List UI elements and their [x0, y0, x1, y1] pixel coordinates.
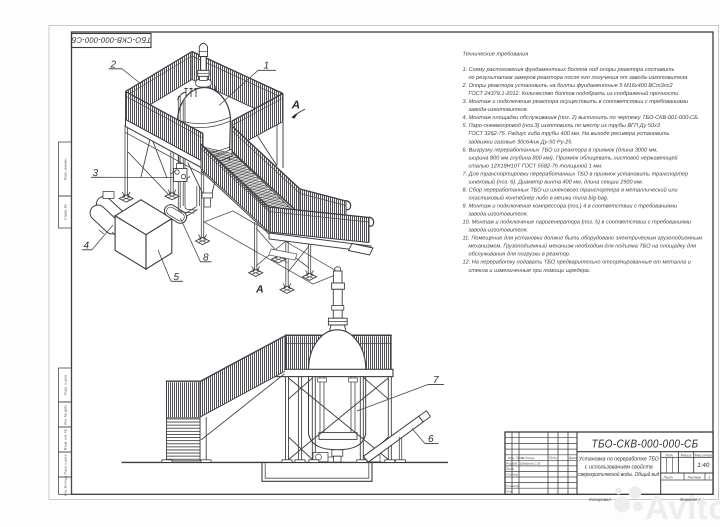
svg-text:1: 1 — [264, 61, 270, 72]
svg-text:ГОСТ 24379.1-2012. Количество: ГОСТ 24379.1-2012. Количество болтов под… — [469, 90, 680, 97]
svg-text:Подп. и дата: Подп. и дата — [63, 454, 67, 474]
svg-text:Лист: Лист — [662, 476, 672, 480]
svg-text:задвижки газовые 30с64нж Ду-50: задвижки газовые 30с64нж Ду-50 Ру-25. — [468, 138, 573, 145]
svg-text:10. Монтаж и подключение парог: 10. Монтаж и подключение парогенератора … — [463, 219, 691, 226]
svg-text:ГОСТ 3262-75. Радиус гиба труб: ГОСТ 3262-75. Радиус гиба трубы 400 мм. … — [469, 130, 670, 137]
svg-text:Инв. № дубл.: Инв. № дубл. — [63, 404, 67, 425]
svg-text:А: А — [291, 99, 300, 111]
svg-text:Технические требования: Технические требования — [463, 50, 529, 57]
svg-text:Установка по переработке ТБО: Установка по переработке ТБО — [578, 456, 659, 463]
svg-text:ТБО-СКВ-000-000-СБ: ТБО-СКВ-000-000-СБ — [71, 36, 151, 45]
svg-text:3: 3 — [93, 168, 99, 179]
svg-text:Справ. №: Справ. № — [63, 204, 67, 220]
svg-text:А: А — [255, 283, 264, 295]
svg-text:1:40: 1:40 — [697, 462, 710, 469]
svg-text:шнековый (поз. 6). Диаметр вин: шнековый (поз. 6). Диаметр винта 400 мм,… — [469, 178, 644, 185]
svg-text:Подп. и дата: Подп. и дата — [63, 375, 67, 395]
svg-text:7: 7 — [433, 375, 439, 386]
svg-text:завода-изготовителя.: завода-изготовителя. — [468, 106, 529, 113]
svg-text:завода-изготовителя.: завода-изготовителя. — [468, 211, 529, 218]
svg-text:с использованием свойств: с использованием свойств — [585, 463, 653, 470]
svg-text:Инв. № подл.: Инв. № подл. — [63, 475, 67, 496]
svg-text:6. Выгрузку переработанных ТБО: 6. Выгрузку переработанных ТБО из реакто… — [463, 146, 658, 153]
svg-text:Разраб.: Разраб. — [506, 462, 518, 466]
svg-text:стекла и измельченные при помо: стекла и измельченные при помощи шредера… — [469, 267, 591, 274]
svg-text:механизмом. Грузоподъемный мех: механизмом. Грузоподъемный механизм необ… — [469, 243, 697, 250]
svg-text:Дата: Дата — [568, 456, 578, 460]
svg-text:Масса: Масса — [681, 453, 692, 457]
svg-text:по результатам замеров реактор: по результатам замеров реактора после ег… — [469, 74, 689, 81]
svg-text:Шадрина С.В.: Шадрина С.В. — [520, 462, 541, 466]
svg-text:завода-изготовителя.: завода-изготовителя. — [468, 227, 529, 234]
svg-text:9. Монтаж и подключение компре: 9. Монтаж и подключение компрессора (поз… — [463, 203, 678, 210]
svg-text:12. На переработку подавать ТБ: 12. На переработку подавать ТБО предвари… — [463, 259, 691, 266]
svg-text:Взам. инв. №: Взам. инв. № — [63, 429, 67, 450]
svg-text:Подп.: Подп. — [549, 456, 558, 460]
svg-text:2. Опоры реактора установить н: 2. Опоры реактора установить на болты фу… — [462, 82, 673, 89]
svg-text:ТБО-СКВ-000-000-СБ: ТБО-СКВ-000-000-СБ — [592, 439, 699, 451]
svg-text:Копировал: Копировал — [589, 497, 611, 502]
svg-text:2: 2 — [110, 60, 117, 71]
svg-text:8: 8 — [203, 253, 209, 264]
svg-text:№ докум.: № докум. — [521, 456, 535, 460]
svg-text:6: 6 — [428, 434, 434, 445]
svg-text:Лит.: Лит. — [664, 453, 673, 457]
svg-text:1. Схему расположения фундамен: 1. Схему расположения фундаментных болто… — [463, 66, 675, 73]
svg-text:1: 1 — [708, 476, 710, 480]
svg-text:5. Паро-пневмопровод (поз.3) и: 5. Паро-пневмопровод (поз.3) изготовить … — [463, 122, 661, 129]
svg-text:Пров.: Пров. — [506, 467, 515, 471]
svg-text:Т.контр.: Т.контр. — [506, 473, 519, 477]
svg-text:7. Для транспортировки перераб: 7. Для транспортировки переработанных ТБ… — [463, 170, 689, 177]
svg-text:Н.контр.: Н.контр. — [506, 484, 520, 488]
svg-text:Avito: Avito — [645, 489, 720, 526]
svg-text:сверхкритической воды. Общий в: сверхкритической воды. Общий вид — [578, 471, 660, 478]
svg-text:Утв.: Утв. — [506, 489, 513, 493]
svg-text:4: 4 — [84, 241, 90, 252]
svg-text:Масштаб: Масштаб — [695, 453, 713, 457]
svg-text:Листов: Листов — [686, 476, 700, 480]
svg-text:11. Помещение для установки до: 11. Помещение для установки должно быть … — [463, 235, 703, 242]
svg-text:3. Монтаж и подключение реакто: 3. Монтаж и подключение реактора осущест… — [463, 98, 689, 105]
svg-text:4. Монтаж площадки обслуживани: 4. Монтаж площадки обслуживания (поз. 2)… — [463, 114, 700, 121]
svg-text:8. Сбор переработанных ТБО из: 8. Сбор переработанных ТБО из шнекового … — [463, 186, 678, 193]
svg-text:сталью 12Х18Н10Т ГОСТ 5582-75: сталью 12Х18Н10Т ГОСТ 5582-75 толщиной 1… — [469, 162, 603, 169]
svg-text:ширина 800 мм глубина 800 мм): ширина 800 мм глубина 800 мм). Приямок о… — [469, 154, 678, 161]
svg-text:обслуживания для погрузки в ре: обслуживания для погрузки в реактор. — [469, 251, 571, 258]
svg-text:пластиковый контейнер либо в м: пластиковый контейнер либо в мешки типа … — [469, 195, 609, 202]
svg-text:Перв. примен.: Перв. примен. — [63, 158, 67, 181]
svg-text:5: 5 — [174, 272, 180, 283]
